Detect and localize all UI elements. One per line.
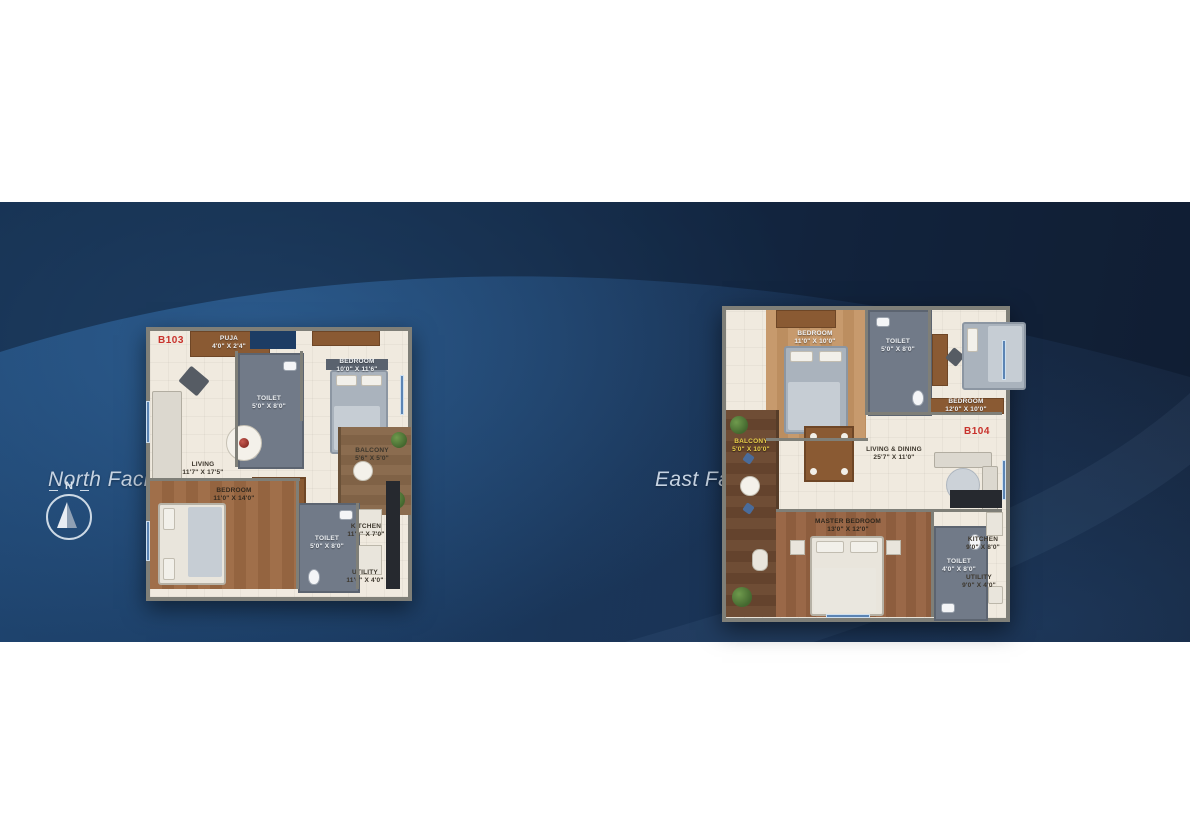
pillow-icon xyxy=(163,558,175,580)
plant-icon xyxy=(732,587,752,607)
wall xyxy=(150,478,300,481)
bed-headboard xyxy=(326,359,388,370)
pillow-icon xyxy=(850,541,878,553)
window xyxy=(400,375,404,415)
pillow-icon xyxy=(336,375,357,386)
wall xyxy=(776,509,1002,512)
pillow-icon xyxy=(819,351,842,362)
refrigerator-icon xyxy=(986,512,1003,536)
toilet-room-bottom xyxy=(298,503,360,593)
window xyxy=(146,401,150,443)
compass-dash-left xyxy=(49,490,58,491)
balcony-chair-icon xyxy=(742,452,755,465)
floor-plan-b104: BEDROOM 11'0" X 10'0" TOILET 5'0" X 8'0"… xyxy=(722,306,1010,622)
window xyxy=(826,614,870,618)
wc-fixture-icon xyxy=(969,534,981,550)
bed-icon-bedroom2 xyxy=(962,322,1026,390)
balcony-table-icon xyxy=(740,476,760,496)
wall xyxy=(931,512,934,617)
compass-needle-right xyxy=(67,502,77,528)
wardrobe-cabinet xyxy=(312,331,380,346)
kitchen-counter xyxy=(386,481,400,589)
wall xyxy=(300,351,303,421)
compass-dash-right xyxy=(80,490,89,491)
refrigerator-icon xyxy=(358,545,382,575)
plate-icon xyxy=(810,468,817,475)
wall xyxy=(356,503,359,589)
pillow-icon xyxy=(163,508,175,530)
wall xyxy=(928,310,931,415)
pillow-icon xyxy=(816,541,844,553)
room-label-living-dining: LIVING & DINING 25'7" X 11'0" xyxy=(844,446,944,462)
armchair-icon xyxy=(178,366,209,397)
toilet-room-bottom xyxy=(934,526,988,621)
compass-icon: N xyxy=(42,482,96,540)
floor-plan-b103: B103 PUJA 4'0" X 2'4" TOILET 5'0" X 8'0"… xyxy=(146,327,412,601)
wc-fixture-icon xyxy=(308,569,320,585)
bed-icon-bedroom1 xyxy=(784,346,848,434)
duvet xyxy=(814,568,876,612)
duct-shaft xyxy=(250,331,296,349)
sink-fixture-icon xyxy=(339,510,353,520)
brochure-page: North Facing 2 BHK (1255 Sq ft.) East Fa… xyxy=(0,0,1190,818)
wall xyxy=(296,481,299,589)
toilet-room-top xyxy=(868,310,932,416)
pillow-icon xyxy=(967,328,978,352)
sink-fixture-icon xyxy=(941,603,955,613)
sink-fixture-icon xyxy=(876,317,890,327)
pillow-icon xyxy=(361,375,382,386)
wall xyxy=(766,438,868,441)
window xyxy=(1002,340,1006,380)
window xyxy=(146,521,150,561)
bed-icon-master-bedroom xyxy=(810,536,884,616)
compass-needle-left xyxy=(57,502,67,528)
balcony-area xyxy=(338,427,411,515)
wall xyxy=(235,351,238,467)
study-desk xyxy=(776,310,836,328)
washing-machine-icon xyxy=(988,586,1003,604)
kitchen-counter xyxy=(950,490,1002,508)
wc-fixture-icon xyxy=(912,390,924,406)
flower-vase-icon xyxy=(239,438,249,448)
wall xyxy=(865,310,868,415)
wall xyxy=(868,412,1002,415)
duvet xyxy=(188,507,222,577)
pot-icon xyxy=(752,549,768,571)
plant-icon xyxy=(391,432,407,448)
kitchen-island xyxy=(358,509,382,535)
nightstand-icon xyxy=(886,540,901,555)
balcony-area xyxy=(726,410,779,617)
round-table-icon xyxy=(226,425,262,461)
unit-number-b103: B103 xyxy=(158,335,184,346)
dining-table-icon xyxy=(804,426,854,482)
bed-icon-bedroom-bottom xyxy=(158,503,226,585)
duvet xyxy=(788,382,840,430)
study-desk xyxy=(932,334,948,386)
balcony-table-icon xyxy=(353,461,373,481)
pillow-icon xyxy=(790,351,813,362)
plant-icon xyxy=(730,416,748,434)
unit-number-b104: B104 xyxy=(964,426,990,437)
nightstand-icon xyxy=(790,540,805,555)
plate-icon xyxy=(841,468,848,475)
balcony-chair-icon xyxy=(742,502,755,515)
window xyxy=(1002,460,1006,500)
sink-fixture-icon xyxy=(283,361,297,371)
